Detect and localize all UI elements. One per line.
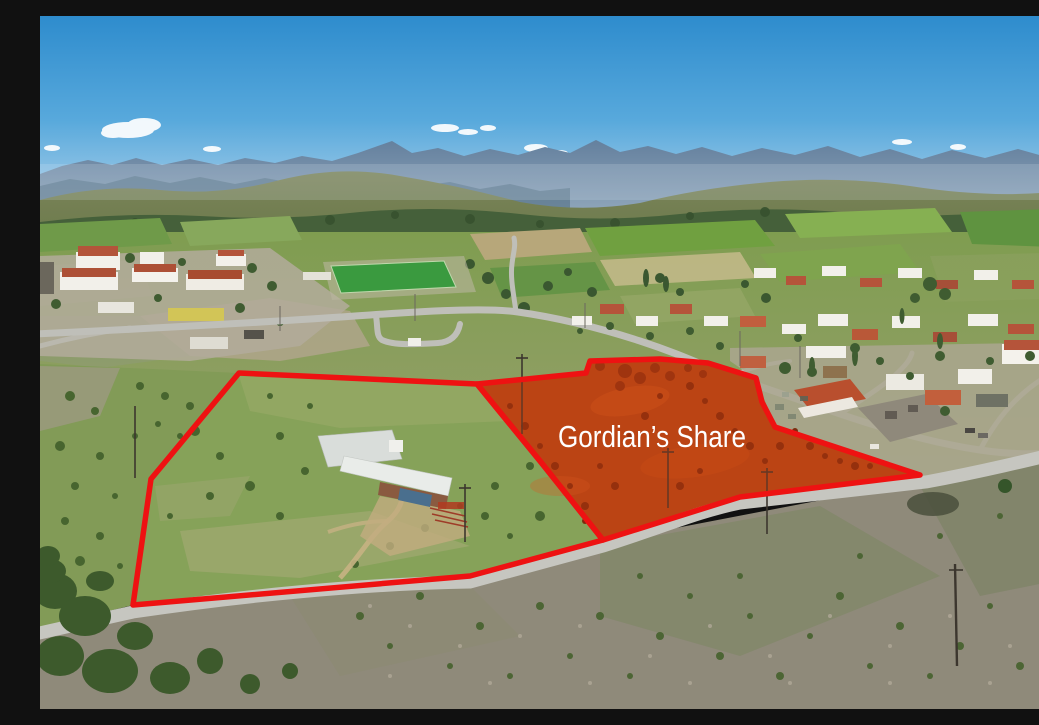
red-gate xyxy=(438,502,464,509)
rooftop-unit xyxy=(389,440,403,452)
debris-pile xyxy=(907,492,959,516)
parked-vehicles xyxy=(303,272,331,280)
parcel-label: Gordian’s Share xyxy=(558,419,746,454)
aerial-photo: Gordian’s Share xyxy=(40,16,1039,709)
sports-field-pitch xyxy=(331,261,456,293)
horizon-haze xyxy=(40,164,1039,200)
aerial-photo-canvas: Gordian’s Share xyxy=(40,16,1039,709)
white-caravan xyxy=(408,338,421,346)
